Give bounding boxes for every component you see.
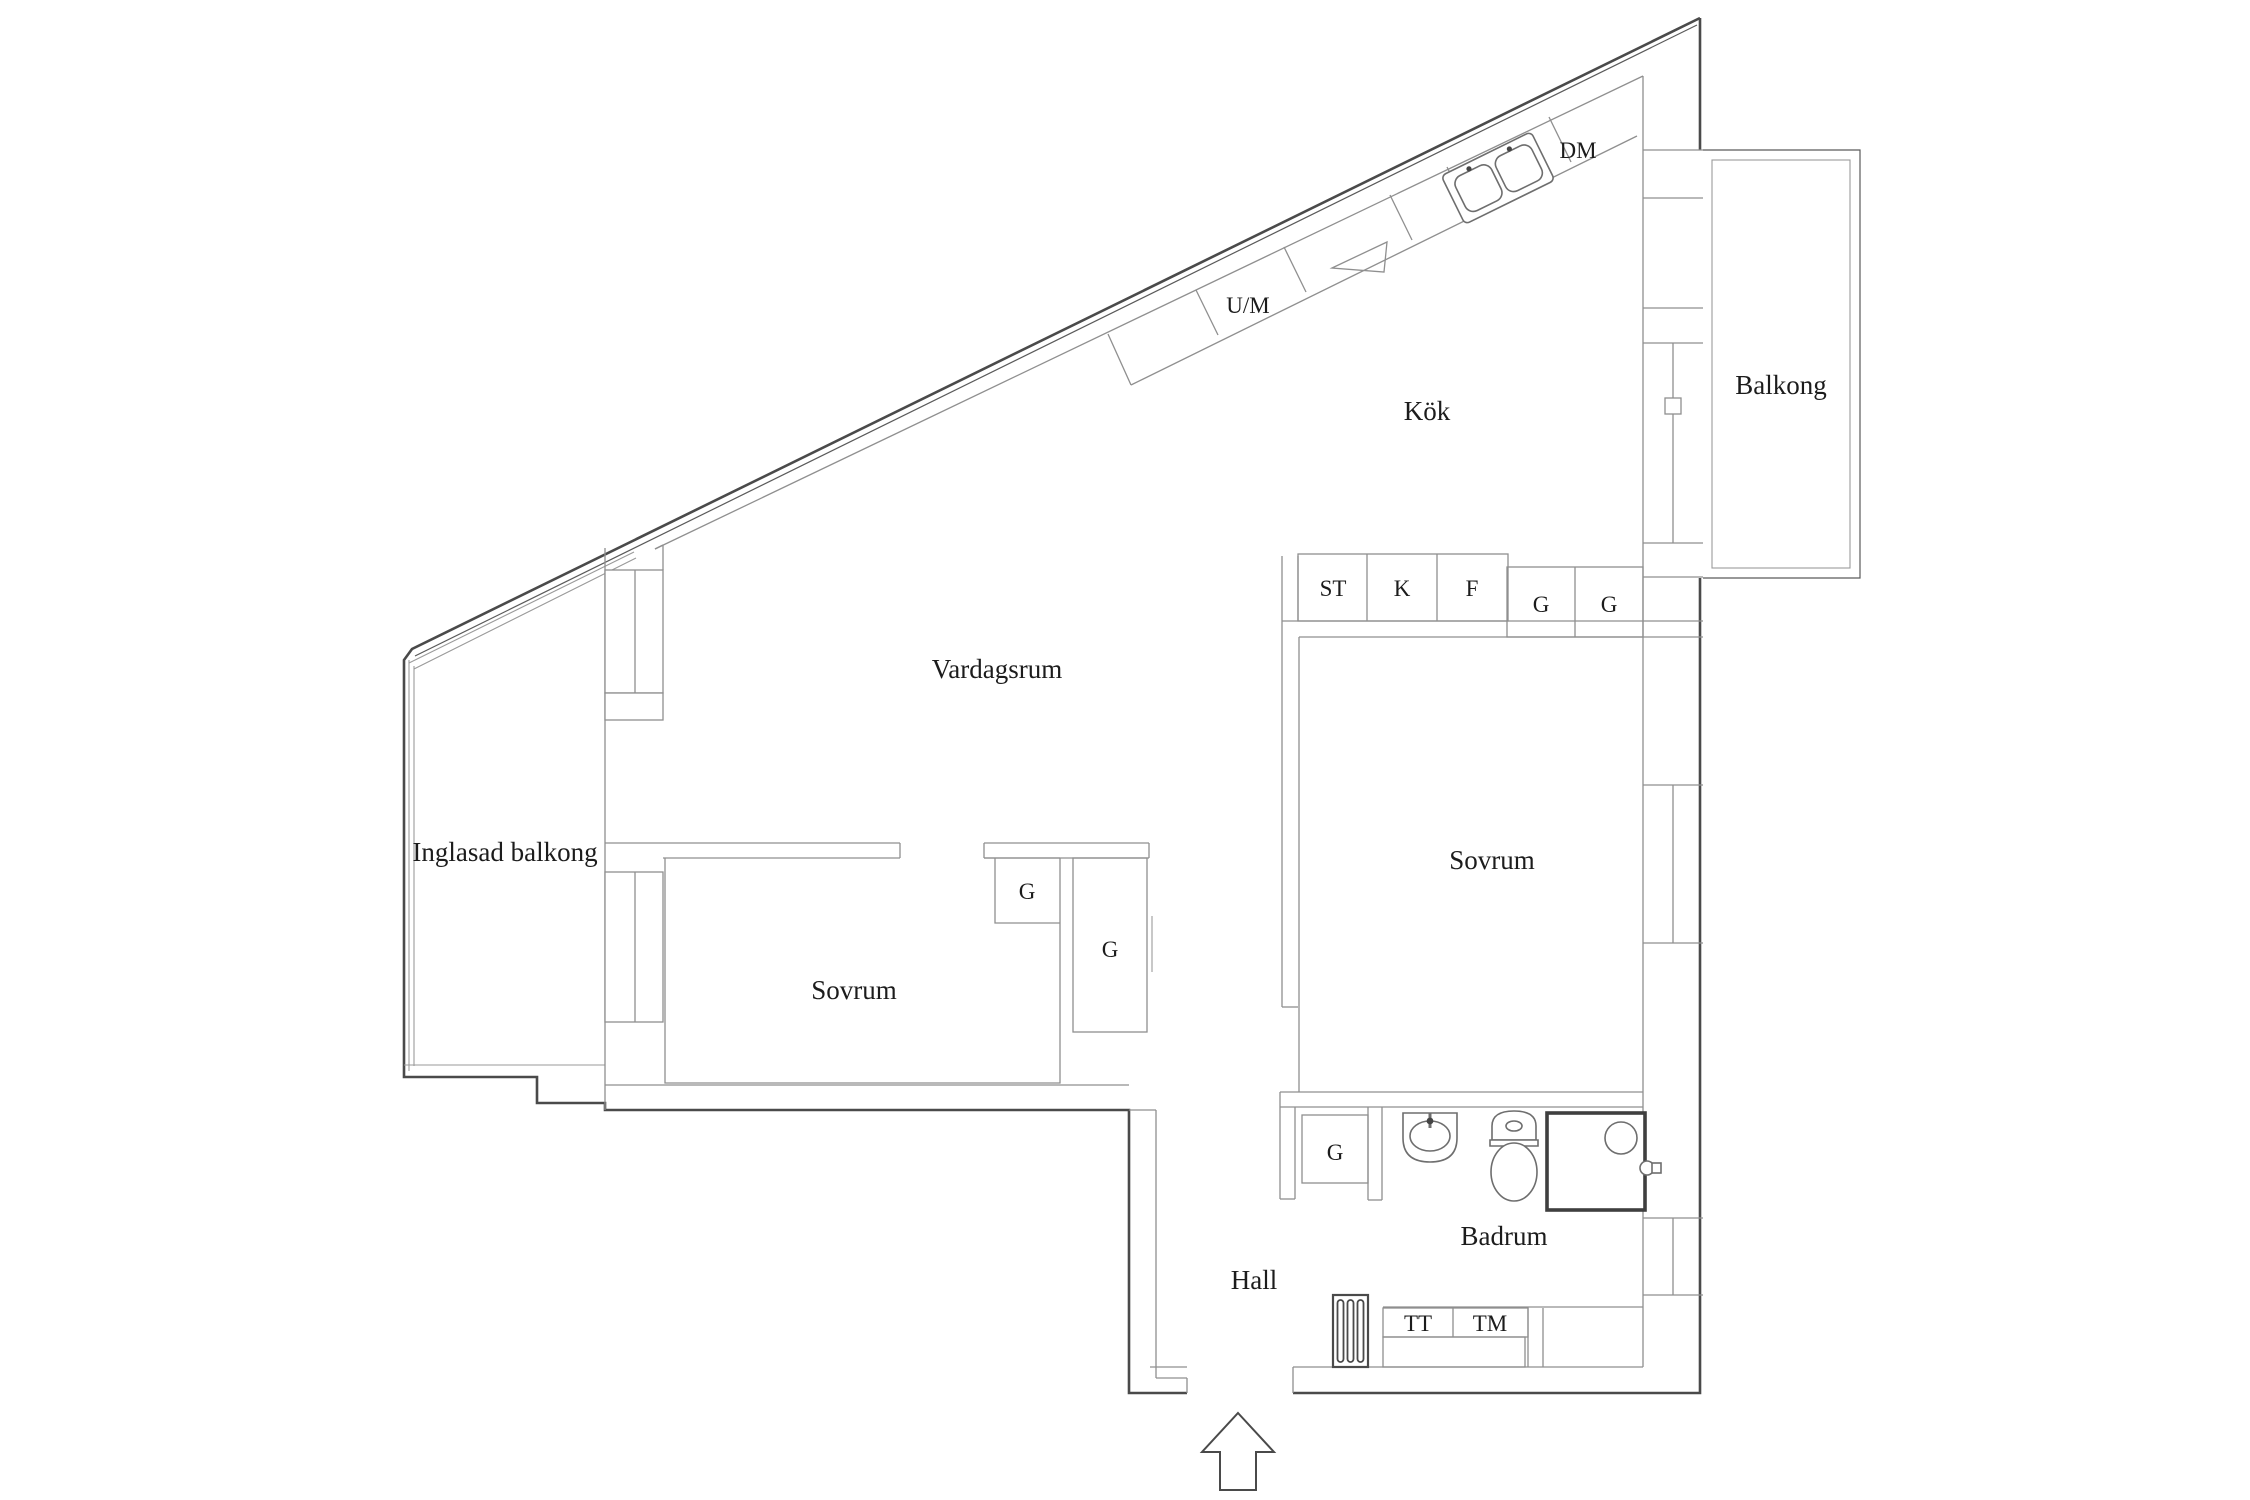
room-label-sovrum-right: Sovrum: [1449, 845, 1535, 875]
room-label-kok: Kök: [1404, 396, 1451, 426]
laundry-area: [1333, 1295, 1543, 1367]
appliance-label-um: U/M: [1226, 293, 1269, 318]
floor-plan-page: Kök Vardagsrum Inglasad balkong Sovrum S…: [0, 0, 2250, 1500]
kitchen-counter: [655, 76, 1643, 549]
appliance-label-dm: DM: [1559, 138, 1596, 163]
washbasin-icon: [1403, 1113, 1457, 1162]
stove-icon: [1332, 242, 1387, 272]
closet-label-g-bedroom-small: G: [1019, 879, 1036, 904]
closet-label-g-kitchen-1: G: [1533, 592, 1550, 617]
room-label-badrum: Badrum: [1461, 1221, 1548, 1251]
entrance-arrow-icon: [1202, 1413, 1274, 1490]
shower-icon: [1547, 1113, 1661, 1210]
window-bedroom-icon: [605, 872, 663, 1022]
bedroom1-walls: [605, 843, 1152, 1085]
closet-label-g-bedroom-tall: G: [1102, 937, 1119, 962]
room-label-sovrum-left: Sovrum: [811, 975, 897, 1005]
room-label-inglasad-balkong: Inglasad balkong: [412, 837, 597, 867]
toilet-icon: [1490, 1111, 1538, 1201]
appliance-label-st: ST: [1320, 576, 1347, 601]
bedroom2-walls: [1280, 556, 1643, 1199]
window-livingroom-icon: [605, 570, 663, 693]
bathroom: [1302, 1107, 1661, 1307]
appliance-label-tt: TT: [1404, 1311, 1432, 1336]
balcony-door-handle-icon: [1665, 398, 1681, 414]
room-label-balkong: Balkong: [1735, 370, 1827, 400]
appliance-label-f: F: [1466, 576, 1479, 601]
west-windows: [605, 570, 663, 1022]
closet-label-g-kitchen-2: G: [1601, 592, 1618, 617]
appliance-label-k: K: [1394, 576, 1411, 601]
wall-pier: [605, 693, 663, 720]
room-label-vardagsrum: Vardagsrum: [932, 654, 1062, 684]
balcony-structure: [1703, 150, 1860, 578]
closet-label-g-badrum: G: [1327, 1140, 1344, 1165]
floor-plan-drawing: Kök Vardagsrum Inglasad balkong Sovrum S…: [0, 0, 2250, 1500]
radiator-icon: [1333, 1295, 1368, 1367]
appliance-label-tm: TM: [1473, 1311, 1508, 1336]
room-label-hall: Hall: [1231, 1265, 1278, 1295]
